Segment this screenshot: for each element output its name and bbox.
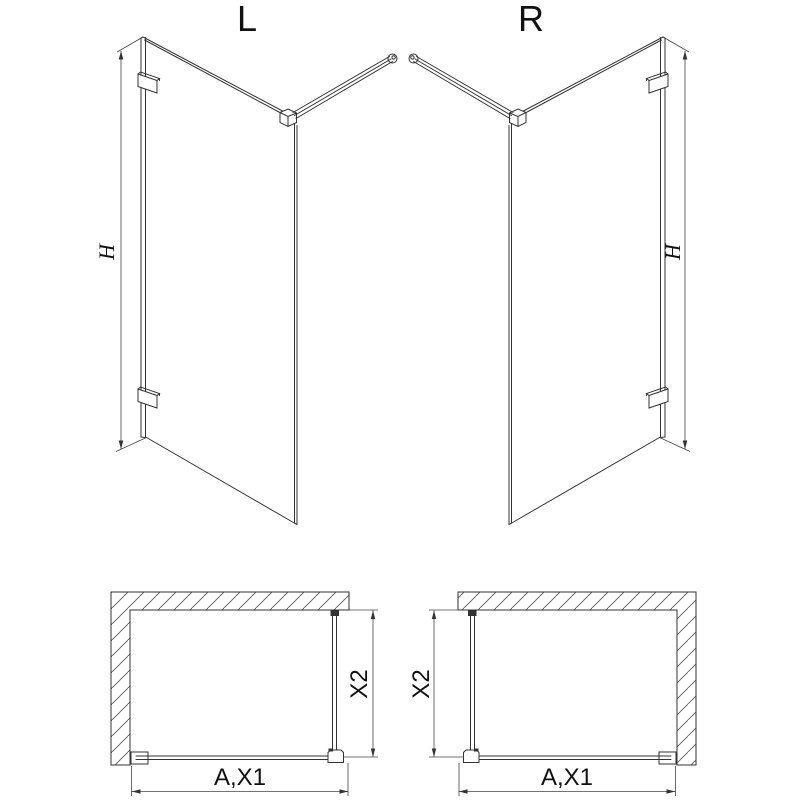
plan-right-wall-hatched bbox=[458, 592, 696, 765]
support-bar bbox=[293, 54, 397, 119]
glass-panel bbox=[143, 37, 297, 525]
dim-label-height-left: H bbox=[94, 243, 119, 261]
dim-arrow-left bbox=[132, 789, 141, 793]
iso-view-right-geometry bbox=[409, 37, 690, 525]
dim-arrow-up bbox=[119, 51, 124, 60]
label-right-version: R bbox=[518, 0, 544, 39]
plan-glass-panel bbox=[131, 752, 329, 764]
dim-label-x2-right: X2 bbox=[408, 669, 435, 698]
dim-label-ax1-left: A,X1 bbox=[214, 764, 266, 791]
iso-view-left-geometry bbox=[116, 37, 397, 525]
label-left-version: L bbox=[237, 0, 257, 39]
dim-label-ax1-right: A,X1 bbox=[541, 764, 593, 791]
plan-support-bar bbox=[328, 610, 344, 763]
plan-bar-connector bbox=[328, 750, 344, 763]
plan-wall-bracket bbox=[131, 752, 148, 764]
height-dimension bbox=[116, 37, 147, 452]
shower-screen-drawing: L R H H X2 X2 A,X1 A,X1 bbox=[0, 0, 800, 800]
dim-label-height-right: H bbox=[660, 243, 685, 261]
dim-arrow-down bbox=[119, 441, 124, 450]
dim-arrow-down bbox=[371, 749, 375, 758]
plan-bar-wall-mount bbox=[331, 610, 340, 617]
wall-profile bbox=[141, 37, 146, 438]
diagram-canvas: L R H H X2 X2 A,X1 A,X1 bbox=[0, 0, 800, 800]
dim-label-x2-left: X2 bbox=[346, 669, 373, 698]
dim-arrow-right bbox=[340, 789, 349, 793]
plan-left-wall-hatched bbox=[111, 592, 349, 765]
dim-arrow-up bbox=[371, 611, 375, 620]
